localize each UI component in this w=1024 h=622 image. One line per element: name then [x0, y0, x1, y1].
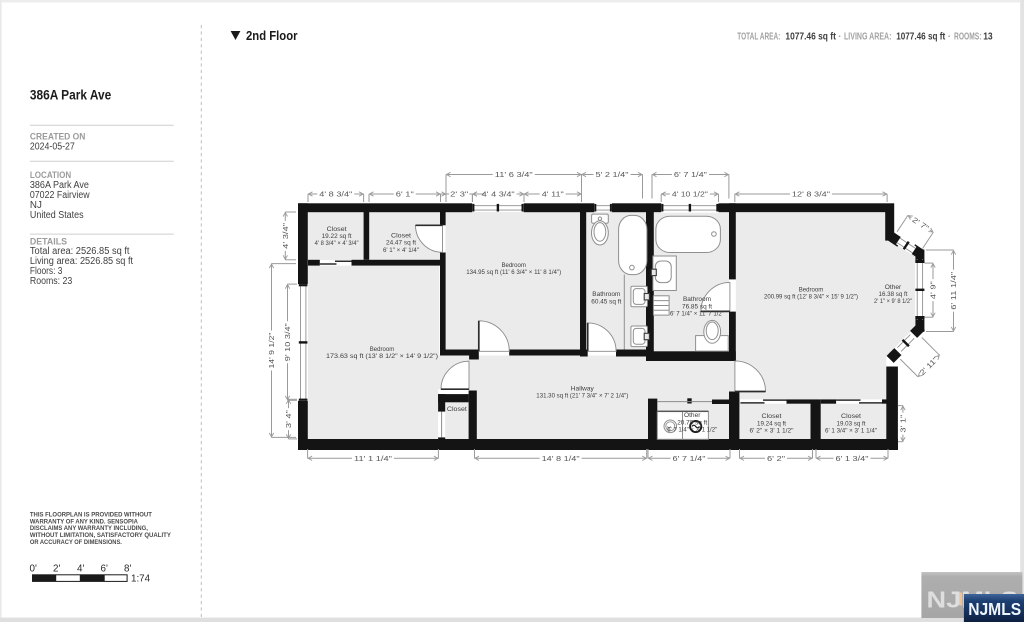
svg-text:6' 2": 6' 2"	[767, 454, 785, 463]
svg-text:2nd Floor: 2nd Floor	[246, 28, 298, 43]
svg-text:CREATED ON: CREATED ON	[30, 131, 86, 141]
svg-text:2' 3": 2' 3"	[450, 190, 468, 199]
svg-text:2024-05-27: 2024-05-27	[30, 141, 75, 152]
svg-text:16.38 sq ft: 16.38 sq ft	[879, 291, 908, 298]
svg-text:Bathroom: Bathroom	[592, 291, 620, 298]
svg-text:5' 2 1/4": 5' 2 1/4"	[596, 170, 629, 179]
svg-text:11' 1 1/4": 11' 1 1/4"	[354, 454, 392, 463]
svg-text:4' 11": 4' 11"	[542, 190, 564, 199]
svg-text:·: ·	[948, 32, 951, 43]
svg-text:14' 9 1/2": 14' 9 1/2"	[267, 332, 276, 368]
svg-text:Closet: Closet	[447, 406, 467, 413]
svg-text:6' 7 1/4": 6' 7 1/4"	[673, 454, 706, 463]
svg-text:4' 10 1/2": 4' 10 1/2"	[672, 190, 708, 199]
svg-text:200.99 sq ft (12' 8 3/4" × 15': 200.99 sq ft (12' 8 3/4" × 15' 9 1/2")	[764, 293, 858, 300]
svg-text:0': 0'	[30, 563, 37, 574]
svg-text:6' 7 1/4" × 11' 7 1/2": 6' 7 1/4" × 11' 7 1/2"	[670, 310, 725, 317]
svg-text:4': 4'	[77, 563, 84, 574]
svg-text:6' 1": 6' 1"	[396, 190, 414, 199]
svg-text:2': 2'	[53, 563, 60, 574]
svg-text:OR ACCURACY OF DIMENSIONS.: OR ACCURACY OF DIMENSIONS.	[30, 539, 122, 546]
svg-text:13: 13	[983, 32, 993, 43]
svg-text:Rooms: 23: Rooms: 23	[30, 276, 73, 287]
svg-text:Closet: Closet	[391, 233, 411, 240]
svg-text:Closet: Closet	[841, 413, 861, 420]
svg-text:4' 3/4": 4' 3/4"	[281, 222, 290, 248]
svg-text:4' 8 3/4": 4' 8 3/4"	[319, 190, 352, 199]
svg-text:THIS FLOORPLAN IS PROVIDED WIT: THIS FLOORPLAN IS PROVIDED WITHOUT	[30, 511, 152, 518]
svg-text:6' 1" × 4' 1/4": 6' 1" × 4' 1/4"	[383, 247, 420, 254]
svg-text:Other: Other	[684, 412, 701, 419]
svg-text:6' 7 1/4": 6' 7 1/4"	[674, 170, 707, 179]
svg-text:24.47 sq ft: 24.47 sq ft	[386, 240, 416, 247]
svg-text:6': 6'	[101, 563, 108, 574]
svg-text:19.03 sq ft: 19.03 sq ft	[837, 420, 866, 427]
svg-text:4' 4 3/4": 4' 4 3/4"	[482, 190, 515, 199]
svg-text:United States: United States	[30, 210, 84, 221]
svg-text:134.95 sq ft (11' 6 3/4" × 11': 134.95 sq ft (11' 6 3/4" × 11' 8 1/4")	[466, 269, 561, 276]
svg-text:76.85 sq ft: 76.85 sq ft	[682, 303, 712, 310]
svg-text:Bedroom: Bedroom	[799, 286, 824, 293]
svg-text:6' 2" × 3' 1 1/2": 6' 2" × 3' 1 1/2"	[750, 427, 795, 434]
svg-text:4' 8 3/4" × 4' 3/4": 4' 8 3/4" × 4' 3/4"	[315, 240, 359, 247]
svg-text:4' 9": 4' 9"	[929, 281, 938, 299]
svg-text:3' 4": 3' 4"	[284, 410, 293, 428]
svg-text:·: ·	[838, 32, 841, 43]
svg-text:ROOMS:: ROOMS:	[954, 32, 982, 43]
svg-text:DISCLAIMS ANY WARRANTY INCLUDI: DISCLAIMS ANY WARRANTY INCLUDING,	[30, 525, 148, 532]
svg-text:14' 8 1/4": 14' 8 1/4"	[542, 454, 580, 463]
svg-text:1077.46 sq ft: 1077.46 sq ft	[785, 32, 836, 43]
svg-text:6' 11 1/4": 6' 11 1/4"	[949, 271, 958, 309]
svg-text:6' 7 1/4" × 3' 1 1/2": 6' 7 1/4" × 3' 1 1/2"	[667, 426, 718, 433]
svg-text:6' 1 3/4": 6' 1 3/4"	[836, 454, 869, 463]
svg-text:LIVING AREA:: LIVING AREA:	[844, 32, 892, 43]
svg-text:TOTAL AREA:: TOTAL AREA:	[737, 32, 780, 43]
svg-text:WARRANTY OF ANY KIND. SENSOPIA: WARRANTY OF ANY KIND. SENSOPIA	[30, 518, 138, 525]
svg-text:Closet: Closet	[327, 226, 347, 233]
svg-text:Other: Other	[885, 284, 902, 291]
svg-text:173.63 sq ft (13' 8 1/2" × 14': 173.63 sq ft (13' 8 1/2" × 14' 9 1/2")	[326, 353, 438, 360]
svg-text:1077.46 sq ft: 1077.46 sq ft	[896, 32, 946, 43]
svg-text:386A Park Ave: 386A Park Ave	[30, 87, 111, 103]
svg-text:131.30 sq ft (21' 7 3/4" × 7': 131.30 sq ft (21' 7 3/4" × 7' 2 1/4")	[536, 392, 628, 399]
svg-text:Bedroom: Bedroom	[370, 346, 395, 353]
svg-text:60.45 sq ft: 60.45 sq ft	[591, 298, 621, 305]
svg-text:LOCATION: LOCATION	[30, 170, 72, 180]
svg-text:Closet: Closet	[762, 413, 782, 420]
svg-text:2' 1" × 9' 8 1/2": 2' 1" × 9' 8 1/2"	[874, 298, 912, 305]
svg-text:Hallway: Hallway	[571, 385, 595, 392]
svg-text:9' 10 3/4": 9' 10 3/4"	[283, 323, 292, 361]
svg-text:Bedroom: Bedroom	[501, 262, 526, 269]
svg-text:20.79 sq ft: 20.79 sq ft	[677, 419, 707, 426]
svg-text:1:74: 1:74	[131, 574, 151, 585]
svg-text:3' 1": 3' 1"	[899, 414, 908, 432]
svg-text:NJMLS: NJMLS	[968, 599, 1021, 619]
svg-text:19.22 sq ft: 19.22 sq ft	[322, 233, 352, 240]
svg-text:DETAILS: DETAILS	[30, 237, 67, 247]
svg-text:12' 8 3/4": 12' 8 3/4"	[792, 190, 830, 199]
svg-text:19.24 sq ft: 19.24 sq ft	[757, 420, 786, 427]
svg-text:WITHOUT LIMITATION, SATISFACTO: WITHOUT LIMITATION, SATISFACTORY QUALITY	[30, 532, 172, 539]
svg-text:6' 1 3/4" × 3' 1 1/4": 6' 1 3/4" × 3' 1 1/4"	[825, 427, 878, 434]
svg-text:11' 6 3/4": 11' 6 3/4"	[495, 170, 533, 179]
svg-text:Bathroom: Bathroom	[683, 296, 711, 303]
